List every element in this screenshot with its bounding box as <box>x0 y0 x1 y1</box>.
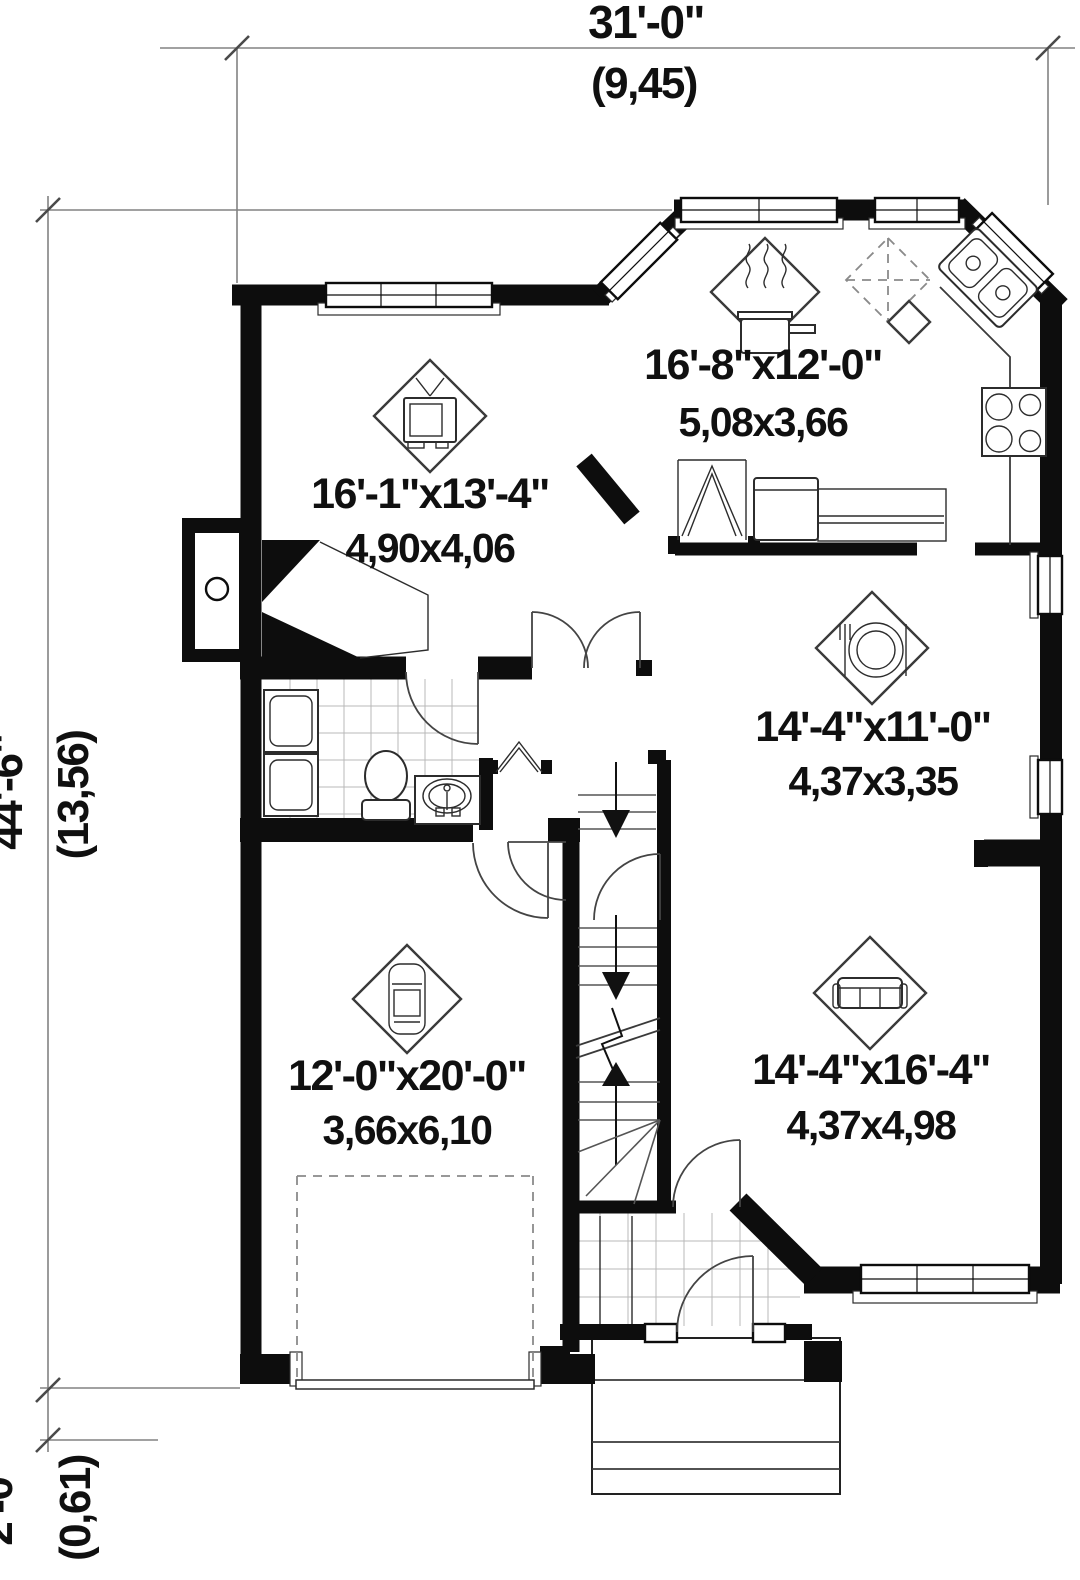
room-label-living: 16'-1"x13'-4" 4,90x4,06 <box>311 360 549 571</box>
entry-sidelight-left <box>645 1324 677 1342</box>
porch-left-stub <box>540 1346 570 1382</box>
dim-bottomleft-imperial: 2'-0" <box>0 1458 22 1545</box>
staircase <box>576 762 660 1204</box>
garage-size-metric: 3,66x6,10 <box>323 1107 493 1153</box>
porch-right-stub <box>804 1341 842 1382</box>
kitchen-size-imperial: 16'-8"x12'-0" <box>644 341 882 389</box>
floor-plan-page: 31'-0" (9,45) 44'-6" (13,56) 2'-0" (0,61… <box>0 0 1080 1580</box>
room-label-family: 14'-4"x16'-4" 4,37x4,98 <box>752 937 990 1148</box>
front-porch-steps <box>592 1338 840 1494</box>
family-size-metric: 4,37x4,98 <box>787 1102 957 1148</box>
vanity-sink <box>415 776 480 824</box>
living-size-metric: 4,90x4,06 <box>346 525 516 571</box>
garage-size-imperial: 12'-0"x20'-0" <box>288 1052 526 1100</box>
washer <box>264 690 318 752</box>
dim-bottomleft-metric: (0,61) <box>51 1455 100 1561</box>
kitchen-bay-diagonal-window <box>597 219 682 304</box>
garage-door <box>296 1380 534 1389</box>
bathroom-fixtures <box>264 690 480 824</box>
toilet <box>362 751 410 820</box>
stairs-down-arrow-2 <box>602 972 630 1000</box>
living-window <box>318 283 500 315</box>
dim-left-metric: (13,56) <box>49 731 98 860</box>
kitchen-window-right <box>869 198 965 229</box>
entry-sidelight-right <box>753 1324 785 1342</box>
garage-entry-door <box>473 843 548 918</box>
kitchen-size-metric: 5,08x3,66 <box>679 399 849 445</box>
stove <box>982 388 1046 456</box>
hall-door-right <box>594 854 660 920</box>
stairs-up-arrow <box>602 1062 630 1086</box>
living-size-imperial: 16'-1"x13'-4" <box>311 470 549 518</box>
hall-door-left <box>508 842 566 900</box>
garage-details <box>296 1176 534 1389</box>
stairs-break-line <box>602 1008 622 1072</box>
floor-plan-canvas: 31'-0" (9,45) 44'-6" (13,56) 2'-0" (0,61… <box>0 0 1080 1580</box>
dining-size-metric: 4,37x3,35 <box>789 758 959 804</box>
kitchen-window-left <box>675 198 843 229</box>
vestibule-door <box>673 1140 740 1207</box>
dining-size-imperial: 14'-4"x11'-0" <box>755 703 990 751</box>
corner-sink <box>937 227 1039 329</box>
closet-bifold-door <box>496 742 542 772</box>
front-door <box>677 1256 753 1332</box>
family-window <box>853 1265 1037 1303</box>
dining-window-upper <box>1030 552 1062 618</box>
living-double-doors <box>532 612 640 668</box>
dryer <box>264 754 318 816</box>
pantry-bifold-door <box>678 460 746 540</box>
kitchen-island <box>846 238 930 343</box>
dishwasher <box>754 478 818 540</box>
dim-left-imperial: 44'-6" <box>0 734 32 850</box>
sofa-icon <box>833 978 907 1008</box>
fireplace-flue <box>206 578 228 600</box>
dim-top-metric: (9,45) <box>591 59 697 108</box>
stairs-down-arrow-1 <box>602 810 630 838</box>
room-label-dining: 14'-4"x11'-0" 4,37x3,35 <box>755 592 990 804</box>
family-size-imperial: 14'-4"x16'-4" <box>752 1046 990 1094</box>
room-label-kitchen: 16'-8"x12'-0" 5,08x3,66 <box>644 238 882 445</box>
room-label-garage: 12'-0"x20'-0" 3,66x6,10 <box>288 945 526 1153</box>
dining-window-lower <box>1030 756 1062 818</box>
dim-top-imperial: 31'-0" <box>588 0 704 48</box>
